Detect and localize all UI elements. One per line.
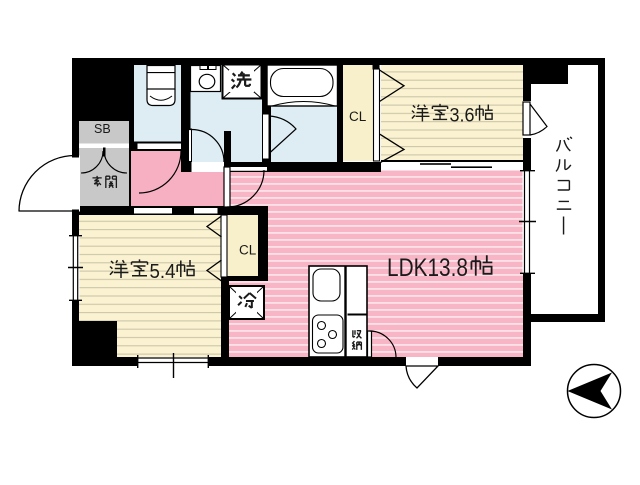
svg-text:3.6: 3.6 <box>450 106 475 127</box>
svg-text:CL: CL <box>349 109 367 124</box>
svg-text:CL: CL <box>239 243 257 258</box>
svg-text:SB: SB <box>94 122 111 136</box>
svg-text:LDK13.8: LDK13.8 <box>387 254 468 282</box>
svg-text:5.4: 5.4 <box>150 261 176 283</box>
